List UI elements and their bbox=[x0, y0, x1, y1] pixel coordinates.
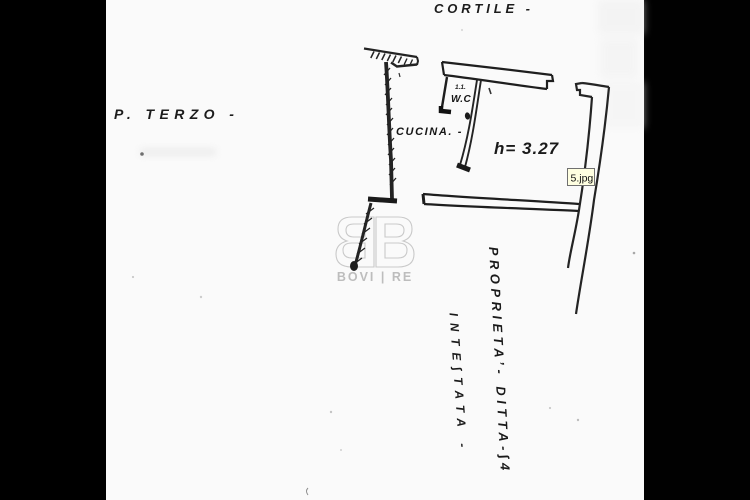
svg-text:1.1.: 1.1. bbox=[455, 84, 466, 91]
svg-text:CORTILE -: CORTILE - bbox=[434, 1, 534, 16]
svg-text:W.C: W.C bbox=[451, 94, 471, 105]
svg-text:5.jpg: 5.jpg bbox=[571, 173, 594, 185]
svg-text:CUCINA. -: CUCINA. - bbox=[396, 126, 463, 138]
svg-text:h= 3.27: h= 3.27 bbox=[494, 139, 560, 158]
svg-text:P. TERZO -: P. TERZO - bbox=[114, 106, 239, 122]
svg-text:BOVI | RE: BOVI | RE bbox=[337, 270, 413, 284]
